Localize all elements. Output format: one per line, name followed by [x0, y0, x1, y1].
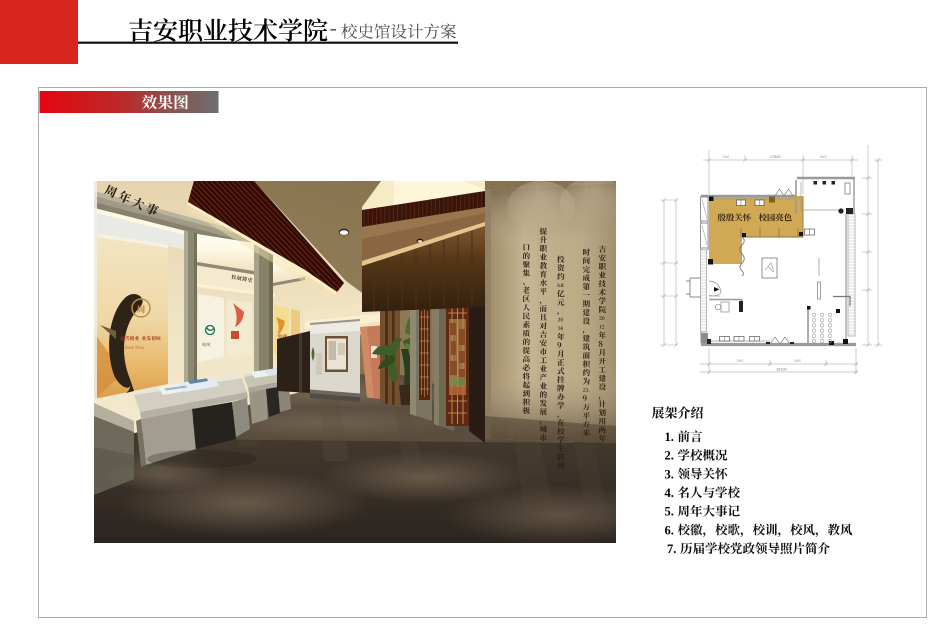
- svg-text:2.: 2.: [665, 449, 674, 463]
- svg-text:5400: 5400: [820, 155, 827, 159]
- svg-text:3.: 3.: [665, 467, 674, 481]
- svg-text:5400: 5400: [794, 359, 801, 363]
- svg-text:17800: 17800: [770, 155, 781, 159]
- svg-text:7.: 7.: [667, 542, 676, 556]
- svg-text:18100: 18100: [776, 368, 787, 372]
- svg-text:4.: 4.: [665, 486, 674, 500]
- svg-text:5.: 5.: [665, 505, 674, 519]
- svg-text:6.: 6.: [665, 523, 674, 537]
- svg-text:7440: 7440: [736, 359, 743, 363]
- svg-text:7440: 7440: [722, 155, 729, 159]
- svg-text:1.: 1.: [665, 430, 674, 444]
